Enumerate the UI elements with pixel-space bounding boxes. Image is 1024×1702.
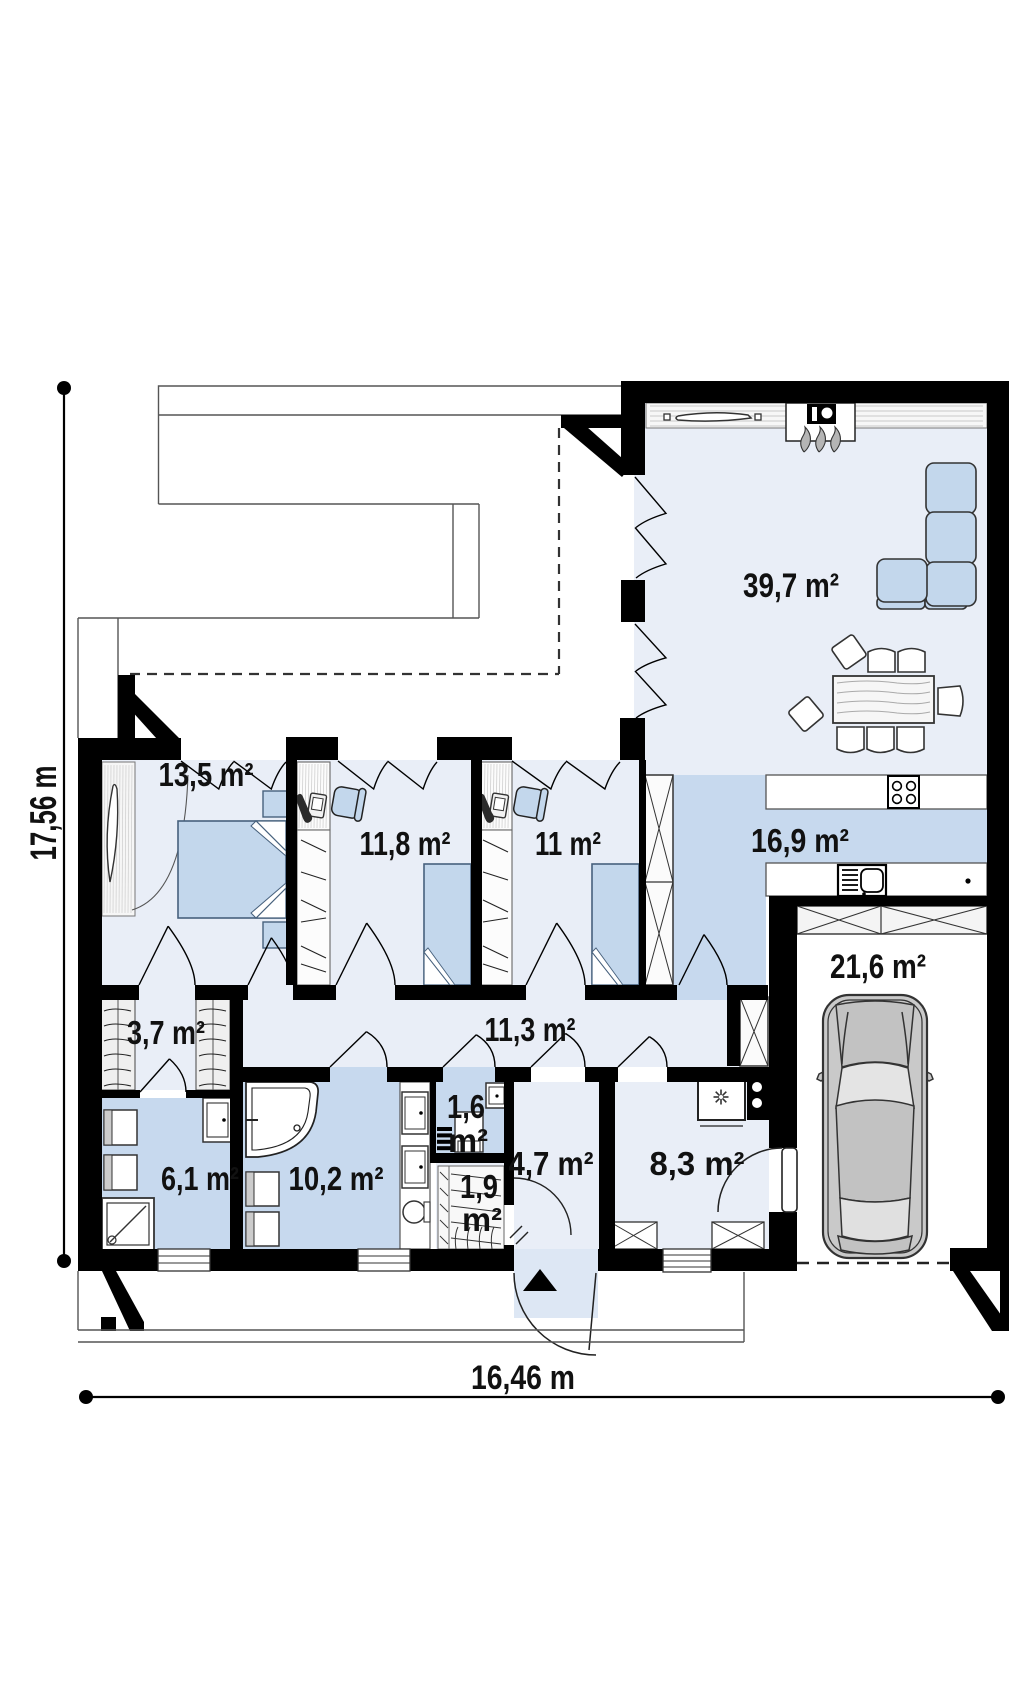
- svg-text:11 m²: 11 m²: [535, 825, 601, 862]
- svg-text:21,6 m²: 21,6 m²: [830, 948, 926, 986]
- svg-text:1,9: 1,9: [460, 1168, 498, 1205]
- svg-text:39,7 m²: 39,7 m²: [743, 567, 839, 605]
- svg-text:m²: m²: [448, 1122, 488, 1159]
- svg-text:11,3 m²: 11,3 m²: [485, 1011, 576, 1048]
- svg-text:4,7 m²: 4,7 m²: [509, 1145, 594, 1182]
- svg-text:16,46 m: 16,46 m: [471, 1359, 575, 1397]
- svg-text:3,7 m²: 3,7 m²: [127, 1014, 205, 1051]
- svg-text:17,56 m: 17,56 m: [23, 766, 64, 861]
- svg-text:m²: m²: [462, 1201, 502, 1238]
- svg-text:13,5 m²: 13,5 m²: [159, 756, 254, 793]
- svg-text:6,1 m²: 6,1 m²: [161, 1160, 239, 1197]
- svg-text:1,6: 1,6: [447, 1088, 485, 1125]
- svg-text:11,8 m²: 11,8 m²: [360, 825, 451, 862]
- svg-text:10,2 m²: 10,2 m²: [289, 1160, 384, 1197]
- svg-text:8,3 m²: 8,3 m²: [650, 1145, 745, 1182]
- svg-text:16,9 m²: 16,9 m²: [751, 822, 849, 859]
